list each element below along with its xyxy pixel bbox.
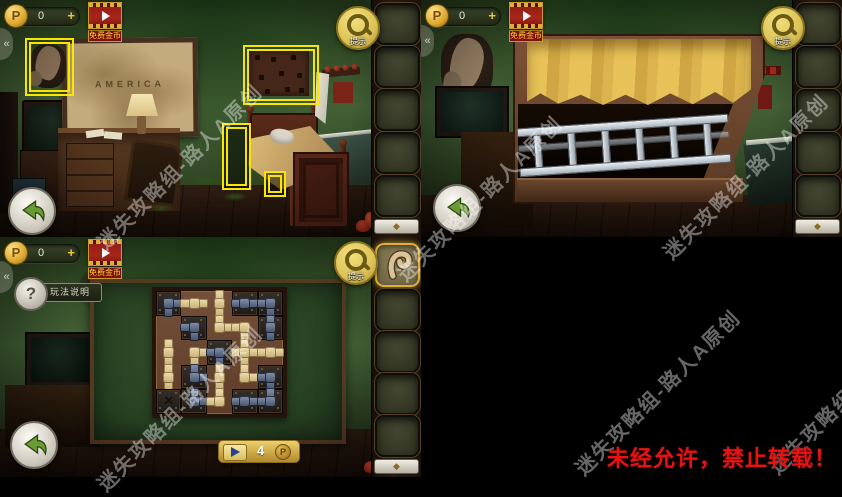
chair (124, 139, 184, 208)
moss (150, 204, 172, 212)
magnifier-icon (345, 249, 367, 271)
pipe-tile[interactable] (207, 291, 232, 316)
free-coins-label: 免费金币 (509, 30, 543, 42)
magnifier-icon (772, 14, 794, 36)
red-cabinet (758, 85, 772, 109)
inventory-slot[interactable] (375, 132, 420, 174)
skip-bar: 4 P (218, 440, 300, 463)
pipe-tile[interactable] (232, 389, 257, 414)
hint-button[interactable]: 提示 (336, 6, 380, 50)
play-icon (523, 11, 531, 21)
scene-bedroom-panel: AMERICA P 0 + 免费金币 « 提示 (0, 0, 421, 237)
play-icon (102, 248, 110, 258)
inventory-slot[interactable] (796, 175, 841, 217)
inventory-slot[interactable] (375, 289, 420, 331)
add-coins-button[interactable]: + (67, 245, 75, 261)
pipe-tile[interactable] (181, 365, 206, 390)
tv (435, 86, 509, 138)
play-icon (102, 11, 110, 21)
back-button[interactable] (433, 184, 481, 232)
free-coins-button[interactable]: 免费金币 (88, 239, 122, 279)
pipe-tile[interactable] (156, 340, 181, 365)
inventory-emblem-bar: ◆ (795, 219, 840, 234)
inventory-slot[interactable] (375, 46, 420, 88)
pipe-puzzle-board: ✕ (152, 287, 287, 418)
pipe-tile[interactable] (181, 316, 206, 341)
blocked-tile-x: ✕ (156, 389, 181, 414)
add-coins-button[interactable]: + (488, 8, 496, 24)
inventory-slot[interactable] (375, 373, 420, 415)
inventory-slot[interactable] (375, 331, 420, 373)
back-arrow-icon (441, 193, 473, 223)
tv-screen (31, 338, 89, 382)
pipe-tile[interactable] (181, 389, 206, 414)
paper (104, 131, 123, 140)
pipe-tile[interactable] (181, 340, 206, 365)
pipe-tile[interactable] (156, 316, 181, 341)
video-icon (88, 2, 122, 29)
inventory-slot[interactable] (796, 46, 841, 88)
pipe-puzzle-panel: ✕ 4 P ? 玩法说明 P 0 + 免费金币 « 提示 (0, 237, 421, 477)
hotspot-peg-panel[interactable] (243, 45, 319, 105)
inventory-slot[interactable] (375, 175, 420, 217)
pipe-grid: ✕ (156, 291, 283, 414)
hint-button[interactable]: 提示 (761, 6, 805, 50)
desk-drawers (66, 143, 114, 207)
inventory-emblem-bar: ◆ (374, 219, 419, 234)
map-label: AMERICA (67, 78, 193, 89)
inventory-emblem-bar: ◆ (374, 459, 419, 474)
bed-footboard (293, 152, 349, 228)
scene-bed-closeup-panel: P 0 + 免费金币 « 提示 ◆ (421, 0, 842, 237)
free-coins-button[interactable]: 免费金币 (509, 2, 543, 42)
pipe-tile[interactable] (232, 340, 257, 365)
inventory-slot[interactable] (796, 89, 841, 131)
skip-play-button[interactable] (223, 444, 247, 461)
hotspot-bedside[interactable] (222, 123, 251, 190)
back-button[interactable] (8, 187, 56, 235)
pipe-tile[interactable] (232, 365, 257, 390)
pipe-tile[interactable] (156, 291, 181, 316)
p-coin-icon: P (4, 241, 28, 265)
pipe-tile[interactable] (258, 340, 283, 365)
pipe-tile[interactable] (156, 365, 181, 390)
wall-map: AMERICA (61, 37, 198, 137)
lamp-base (137, 116, 146, 134)
blank-panel: 未经允许，禁止转载！ (421, 237, 842, 477)
tv-screen (441, 92, 503, 132)
pipe-tile[interactable]: ✕ (156, 389, 181, 414)
inventory-slot[interactable] (375, 415, 420, 457)
skip-cost: 4 (257, 441, 264, 461)
hotspot-under-bed[interactable] (264, 171, 286, 197)
coin-icon: P (275, 444, 291, 460)
pipe-tile[interactable] (258, 316, 283, 341)
inventory-strip: ◆ (371, 237, 421, 477)
p-coin-icon: P (425, 4, 449, 28)
back-button[interactable] (10, 421, 58, 469)
bed-base (517, 178, 743, 202)
inventory-slot[interactable] (796, 132, 841, 174)
pipe-tile[interactable] (207, 389, 232, 414)
video-icon (509, 2, 543, 29)
pipe-tile[interactable] (258, 365, 283, 390)
video-icon (88, 239, 122, 266)
tv (25, 332, 95, 388)
pipe-tile[interactable] (207, 316, 232, 341)
pipe-tile[interactable] (207, 340, 232, 365)
moss (222, 192, 248, 201)
moss (190, 176, 224, 186)
add-coins-button[interactable]: + (67, 8, 75, 24)
pipe-tile[interactable] (207, 365, 232, 390)
hotspot-deer-head[interactable] (25, 38, 74, 96)
p-coin-icon: P (4, 4, 28, 28)
inventory-slot[interactable] (375, 3, 420, 45)
inventory-item-hook[interactable] (375, 243, 420, 287)
hook-icon (381, 247, 415, 283)
pipe-tile[interactable] (232, 316, 257, 341)
hint-button[interactable]: 提示 (334, 241, 378, 285)
copyright-notice: 未经允许，禁止转载！ (607, 441, 837, 473)
pipe-tile[interactable] (232, 291, 257, 316)
free-coins-label: 免费金币 (88, 267, 122, 279)
inventory-slot[interactable] (375, 89, 420, 131)
magnifier-icon (347, 14, 369, 36)
back-arrow-icon (16, 196, 48, 226)
free-coins-button[interactable]: 免费金币 (88, 2, 122, 42)
help-button[interactable]: ? (14, 277, 48, 311)
free-coins-label: 免费金币 (88, 30, 122, 42)
pipe-tile[interactable] (258, 291, 283, 316)
back-arrow-icon (18, 430, 50, 460)
red-cloth (333, 82, 353, 103)
pipe-tile[interactable] (258, 389, 283, 414)
pipe-tile[interactable] (181, 291, 206, 316)
